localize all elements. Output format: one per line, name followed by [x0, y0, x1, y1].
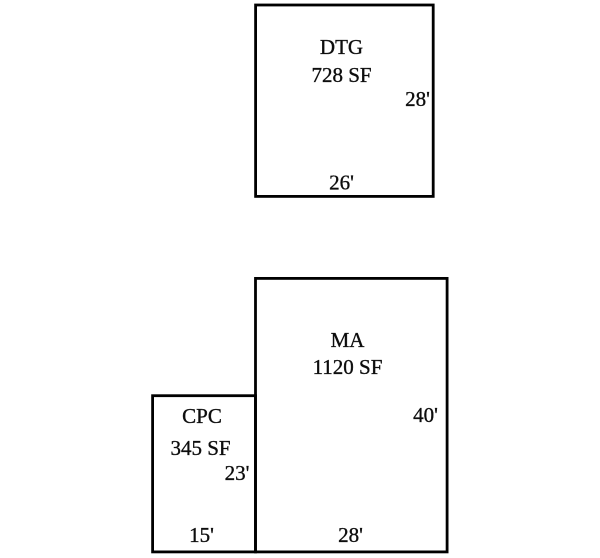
svg-text:40': 40' — [413, 403, 438, 427]
svg-text:28': 28' — [405, 87, 430, 111]
svg-text:DTG: DTG — [320, 35, 363, 59]
svg-text:28': 28' — [338, 523, 363, 547]
svg-text:1120 SF: 1120 SF — [313, 355, 383, 379]
svg-text:CPC: CPC — [182, 404, 222, 428]
svg-text:23': 23' — [225, 461, 250, 485]
svg-text:15': 15' — [189, 523, 214, 547]
svg-text:345 SF: 345 SF — [170, 436, 230, 460]
svg-text:728 SF: 728 SF — [311, 63, 371, 87]
svg-text:26': 26' — [329, 171, 354, 195]
svg-text:MA: MA — [331, 328, 366, 352]
